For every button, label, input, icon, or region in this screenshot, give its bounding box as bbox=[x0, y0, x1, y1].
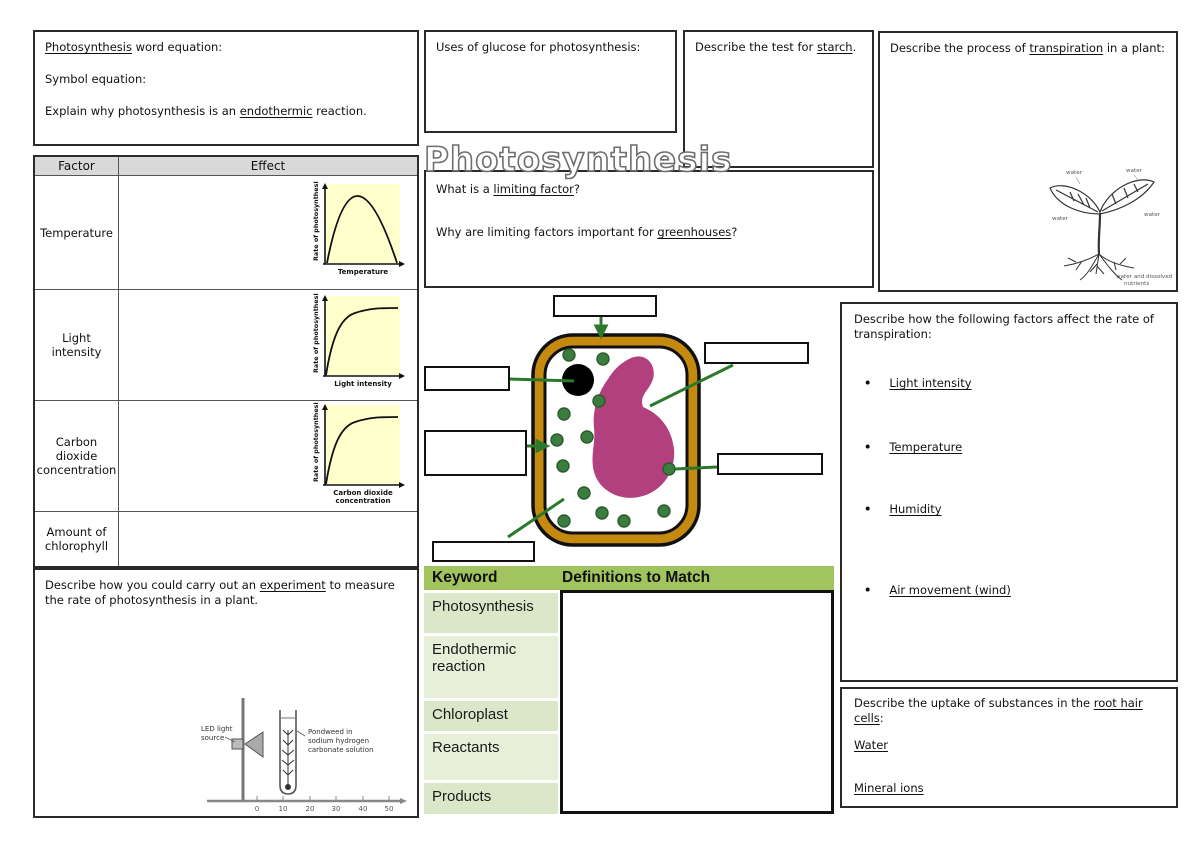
pondweed-label-line1: Pondweed in bbox=[308, 728, 353, 736]
bullet-light-intensity: •Light intensity bbox=[864, 376, 972, 390]
effect-cell bbox=[119, 512, 417, 566]
definitions-match-area bbox=[560, 590, 834, 814]
svg-text:20: 20 bbox=[306, 805, 315, 813]
table-row-co2: Carbon dioxide concentration Rate of pho… bbox=[35, 400, 417, 511]
svg-text:50: 50 bbox=[385, 805, 394, 813]
worksheet-page: Photosynthesis word equation: Symbol equ… bbox=[0, 0, 1200, 848]
starch-test-prompt: Describe the test for starch. bbox=[695, 40, 862, 55]
graph-xlabel: Light intensity bbox=[334, 380, 392, 388]
table-row-temperature: Temperature Rate of photosynthesis Tempe… bbox=[35, 175, 417, 289]
water-item: Water bbox=[854, 738, 1164, 753]
symbol-equation-prompt: Symbol equation: bbox=[45, 72, 407, 87]
bullet-air-movement: •Air movement (wind) bbox=[864, 583, 1011, 597]
limiting-factor-question: What is a limiting factor? bbox=[436, 182, 862, 197]
co2-graph: Rate of photosynthesis Carbon dioxide co… bbox=[307, 402, 411, 510]
seedling-diagram: water water water water water and dissol… bbox=[1030, 162, 1172, 288]
plant-cell-diagram bbox=[424, 288, 836, 566]
cell-label-box-cytoplasm bbox=[432, 541, 535, 562]
cell-label-box-wall bbox=[424, 430, 527, 476]
water-label: water bbox=[1126, 168, 1143, 174]
cell-label-box-nucleus bbox=[424, 366, 510, 391]
pondweed-label-line2: sodium hydrogen bbox=[308, 737, 369, 745]
svg-text:10: 10 bbox=[279, 805, 288, 813]
experiment-diagram: LED light source Pondweed in sodium hydr… bbox=[35, 570, 417, 816]
cell-label-box-top bbox=[553, 295, 657, 317]
bullet-icon: • bbox=[864, 440, 871, 454]
svg-text:30: 30 bbox=[332, 805, 341, 813]
bullet-humidity: •Humidity bbox=[864, 502, 942, 516]
svg-text:40: 40 bbox=[359, 805, 368, 813]
table-row-chlorophyll: Amount of chlorophyll bbox=[35, 511, 417, 566]
graph-xlabel-line1: Carbon dioxide bbox=[333, 489, 393, 497]
stem bbox=[1099, 214, 1100, 254]
effect-cell: Rate of photosynthesis Carbon dioxide co… bbox=[119, 401, 417, 511]
factor-cell: Temperature bbox=[35, 176, 119, 289]
keyword-endothermic-reaction: Endothermic reaction bbox=[424, 636, 558, 698]
led-label-line1: LED light bbox=[201, 725, 233, 733]
root-hair-box: Describe the uptake of substances in the… bbox=[840, 687, 1178, 808]
keyword-products: Products bbox=[424, 783, 558, 814]
pondweed-label-line3: carbonate solution bbox=[308, 746, 373, 754]
cell-label-box-vacuole bbox=[704, 342, 809, 364]
table-row-light-intensity: Light intensity Rate of photosynthesis L… bbox=[35, 289, 417, 400]
ruler-ticks: 0 10 20 30 40 50 bbox=[255, 805, 394, 813]
transpiration-prompt: Describe the process of transpiration in… bbox=[890, 41, 1166, 56]
keyword-header-cell: Keyword bbox=[424, 569, 558, 587]
keyword-table-header: Keyword Definitions to Match bbox=[424, 566, 834, 590]
mineral-ions-item: Mineral ions bbox=[854, 781, 1164, 796]
led-unit bbox=[232, 739, 243, 749]
page-title: Photosynthesis bbox=[424, 140, 732, 180]
graph-xlabel-line2: concentration bbox=[336, 497, 391, 505]
root-hair-prompt: Describe the uptake of substances in the… bbox=[854, 696, 1164, 726]
word-equation-box: Photosynthesis word equation: Symbol equ… bbox=[33, 30, 419, 146]
transpiration-box: Describe the process of transpiration in… bbox=[878, 31, 1178, 292]
graph-ylabel: Rate of photosynthesis bbox=[312, 181, 320, 261]
temperature-graph: Rate of photosynthesis Temperature bbox=[307, 181, 411, 285]
bullet-icon: • bbox=[864, 376, 871, 390]
experiment-box: Describe how you could carry out an expe… bbox=[33, 568, 419, 818]
keyword-reactants: Reactants bbox=[424, 734, 558, 780]
water-label: water bbox=[1144, 212, 1161, 218]
graph-ylabel: Rate of photosynthesis bbox=[312, 293, 320, 373]
led-label-line2: source bbox=[201, 734, 224, 742]
graph-xlabel: Temperature bbox=[338, 268, 389, 276]
bullet-icon: • bbox=[864, 583, 871, 597]
factor-cell: Amount of chlorophyll bbox=[35, 512, 119, 566]
keyword-photosynthesis: Photosynthesis bbox=[424, 593, 558, 633]
effect-cell: Rate of photosynthesis Temperature bbox=[119, 176, 417, 289]
water-label: water bbox=[1052, 216, 1069, 222]
pondweed-sketch bbox=[282, 730, 294, 790]
factor-cell: Carbon dioxide concentration bbox=[35, 401, 119, 511]
factor-table-header: Factor Effect bbox=[35, 157, 417, 175]
svg-text:0: 0 bbox=[255, 805, 259, 813]
greenhouses-question: Why are limiting factors important for g… bbox=[436, 225, 862, 240]
bullet-icon: • bbox=[864, 502, 871, 516]
roots-label-line2: nutrients bbox=[1124, 281, 1149, 287]
factor-header-cell: Factor bbox=[35, 157, 119, 175]
effect-header-cell: Effect bbox=[119, 157, 417, 175]
transpiration-factors-prompt: Describe how the following factors affec… bbox=[854, 312, 1154, 342]
graph-ylabel: Rate of photosynthesis bbox=[312, 402, 320, 482]
bullet-temperature: •Temperature bbox=[864, 440, 962, 454]
water-label: water bbox=[1066, 170, 1083, 176]
definitions-header-cell: Definitions to Match bbox=[558, 569, 710, 587]
glucose-uses-prompt: Uses of glucose for photosynthesis: bbox=[436, 40, 665, 55]
light-intensity-graph: Rate of photosynthesis Light intensity bbox=[307, 293, 411, 397]
cell-label-box-chloroplast bbox=[717, 453, 823, 475]
limiting-factor-box: What is a limiting factor? Why are limit… bbox=[424, 170, 874, 288]
factor-effect-table: Factor Effect Temperature Rate of photos… bbox=[33, 155, 419, 568]
roots-label-line1: water and dissolved bbox=[1116, 274, 1172, 280]
keyword-chloroplast: Chloroplast bbox=[424, 701, 558, 731]
effect-cell: Rate of photosynthesis Light intensity bbox=[119, 290, 417, 400]
transpiration-factors-box: Describe how the following factors affec… bbox=[840, 302, 1178, 682]
factor-cell: Light intensity bbox=[35, 290, 119, 400]
word-equation-prompt: Photosynthesis word equation: bbox=[45, 40, 407, 55]
endothermic-prompt: Explain why photosynthesis is an endothe… bbox=[45, 104, 407, 119]
lamp-cone-icon bbox=[245, 732, 263, 757]
glucose-uses-box: Uses of glucose for photosynthesis: bbox=[424, 30, 677, 133]
